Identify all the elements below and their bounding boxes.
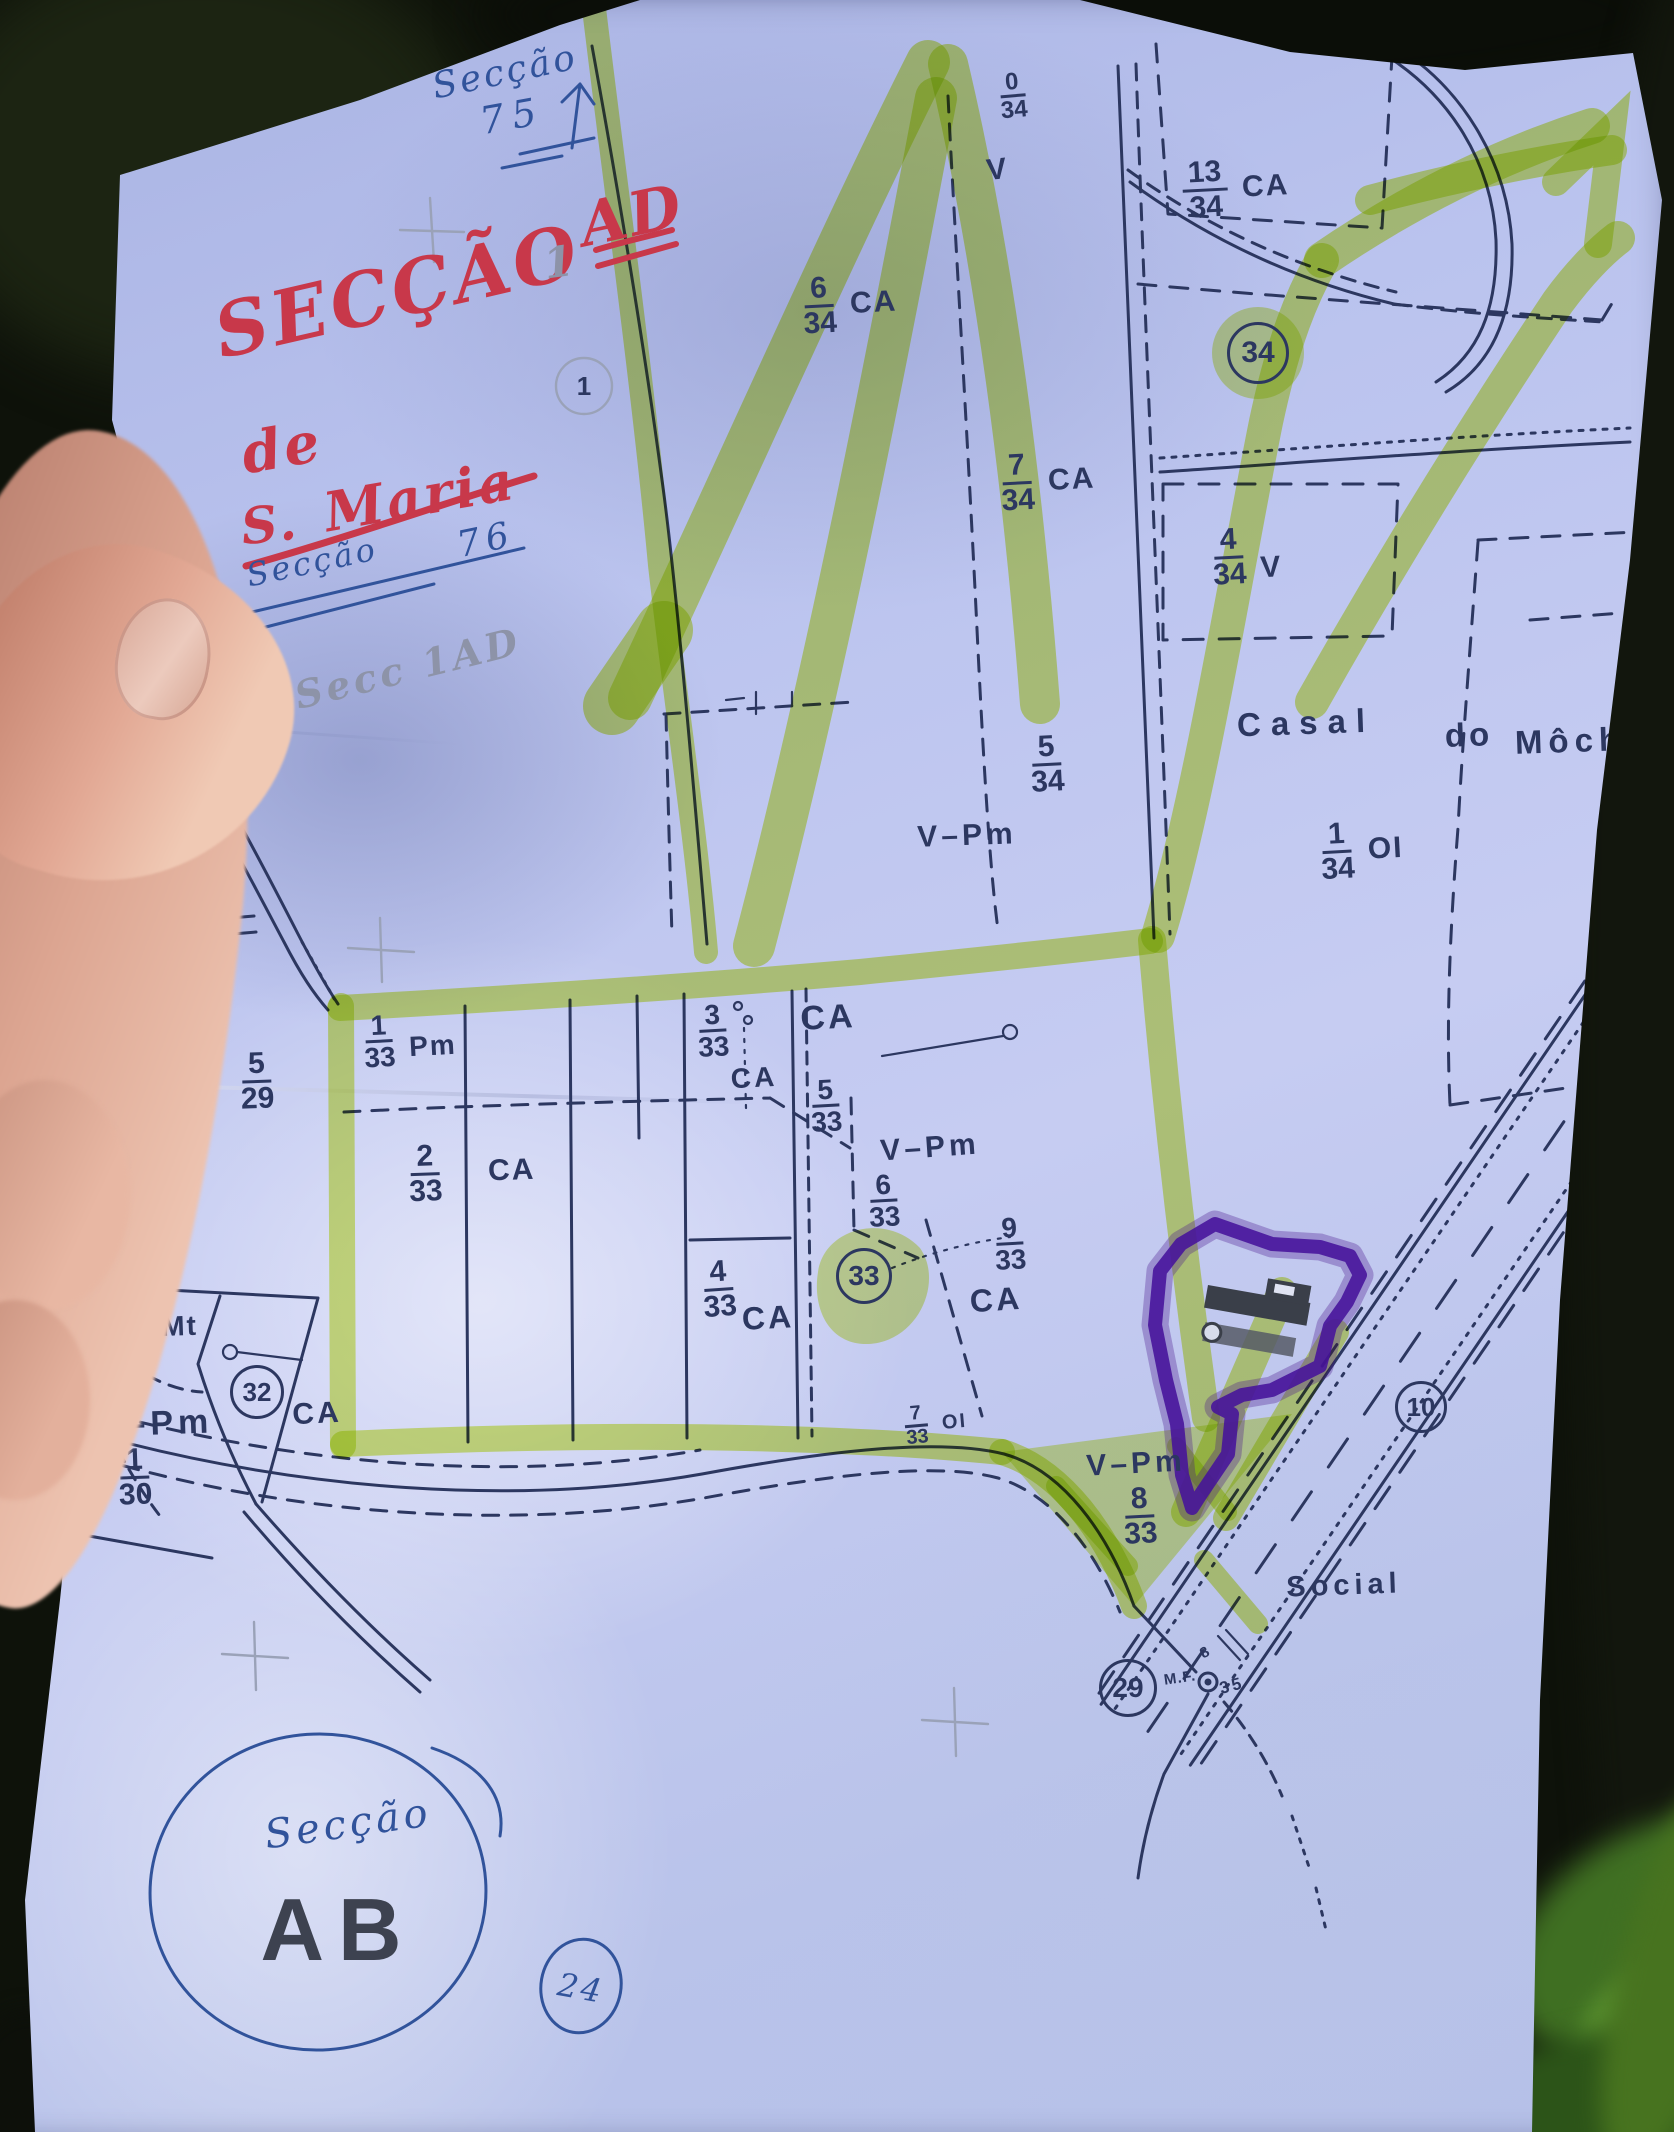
parcel-ca-mid: CA [730,1061,778,1095]
parcel-9-33-use: CA [969,1280,1024,1321]
note-seccao-76-word: Secção [243,530,381,595]
parcel-9-33: 933 [993,1212,1027,1275]
title-ad: AD [574,171,691,261]
map-linework [0,0,1674,2132]
parcel-7-33: 733 OI [903,1399,969,1449]
parcel-4-33-use: CA [741,1298,795,1338]
junction-35: 35 [1217,1673,1246,1699]
note-seccao-75-word: Secção [429,37,582,108]
pencil-crosses [222,198,988,1756]
parcel-2-33: 233 CA [408,1137,537,1207]
parcel-ca-32: CA [291,1396,342,1433]
parcel-6-34: 634 CA [801,269,899,340]
parcel-5-33-use: V–Pm [879,1128,981,1169]
building-footprint [1198,1268,1313,1358]
parcel-1-33: 133 Pm [362,1007,458,1074]
title-seccao: SECÇÃO [206,208,589,376]
parcel-v-top: V [985,152,1011,188]
ink-roads-and-parcels [78,44,1674,1930]
pencil-circle-1 [556,358,612,414]
place-do: do [1444,715,1494,755]
parcel-3-33-use: CA [799,997,856,1039]
parcel-0-34: 034 [997,68,1028,123]
parcel-5-33: 533 [809,1074,843,1137]
highlight-circle-33 [817,1228,929,1344]
section-ab-letters: AB [260,1879,415,1981]
junction-8: 8 [1197,1642,1215,1662]
red-pen-strokes [246,230,676,566]
title-insert-1: 1 [541,235,580,288]
circled-10: 10 [1395,1381,1447,1433]
parcel-5-29: 529 [239,1047,275,1114]
circled-34: 34 [1227,322,1289,384]
purple-marker-outline [1155,1224,1360,1508]
circled-29: 29 [1099,1659,1157,1717]
title-s: S. [238,492,302,557]
map-paper: 034 V 1334 CA 634 CA 734 CA 434 V 534 V–… [0,0,1674,2132]
photo-scene: 034 V 1334 CA 634 CA 734 CA 434 V 534 V–… [0,0,1674,2132]
note-seccao-76-num: 76 [453,514,518,566]
circled-33: 33 [836,1248,892,1304]
parcel-5-34: 534 [1029,730,1066,798]
parcel-4-34: 434 V [1211,521,1284,591]
highlight-circle-34 [1212,307,1304,399]
circled-24: 24 [555,1965,608,2011]
title-maria: Maria [319,448,521,545]
parcel-4-33: 433 [700,1255,738,1323]
place-social: Social [1286,1567,1403,1604]
parcel-3-33: 333 [696,999,730,1062]
note-pencil-secc-1ad: Secc 1AD [290,618,526,718]
parcel-8-33-use: V–Pm [1085,1444,1186,1483]
highlighter-marks [340,0,1618,1624]
section-ab-word: Secção [262,1790,435,1859]
parcel-5-34-use: V–Pm [917,817,1018,854]
parcel-1-34: 134 OI [1319,815,1405,885]
parcel-6-33: 633 [867,1169,901,1232]
note-seccao-75-num: 75 [476,89,547,144]
parcel-8-33: 833 [1122,1482,1159,1550]
circled-1: 1 [558,360,610,412]
parcel-7-34: 734 CA [999,446,1097,517]
parcel-13-34: 1334 CA [1181,152,1291,223]
title-de: de [236,408,327,487]
place-casal: Casal [1236,702,1375,745]
junction-mf: M.F. [1163,1667,1197,1688]
circled-32: 32 [230,1365,284,1419]
